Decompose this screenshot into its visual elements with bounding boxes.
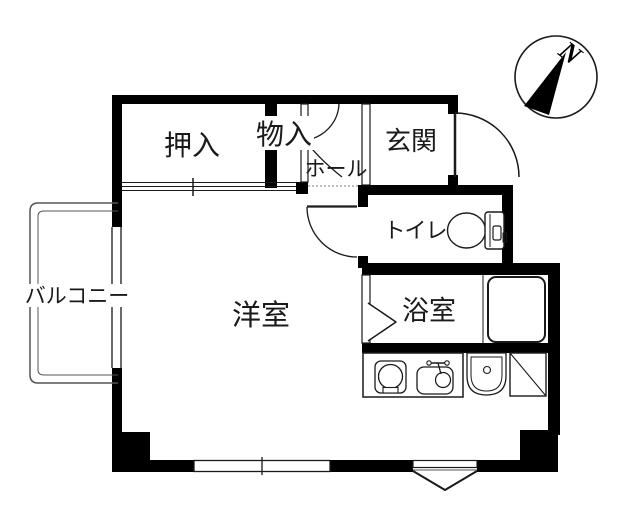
room-labels: 押入 物入 ホール 玄関 トイレ 洋室 浴室 バルコニー: [24, 116, 456, 332]
label-monoire: 物入: [256, 119, 312, 150]
stove-icon: [375, 361, 406, 393]
entry-step-wall: [358, 185, 513, 195]
refrigerator-space-icon: [510, 353, 546, 396]
left-wall-upper: [112, 95, 122, 228]
label-oshiire: 押入: [164, 130, 220, 161]
label-western-room: 洋室: [232, 299, 290, 332]
entry-right-wall-upper: [448, 95, 458, 114]
bathroom-bottom-wall: [362, 343, 558, 353]
toilet-left-wall-lower: [358, 256, 368, 268]
floorplan-drawing: N 押入 物入 ホール 玄関 トイレ 洋室 浴室 バルコニー: [0, 0, 640, 515]
toilet-left-wall-upper: [358, 195, 368, 207]
bathroom-top-wall: [362, 263, 560, 275]
label-bathroom: 浴室: [402, 296, 456, 326]
entry-door-arc: [455, 113, 519, 177]
bay-window-vee: [413, 471, 477, 490]
partition-stub: [296, 182, 308, 194]
top-wall: [112, 95, 458, 104]
washbasin-icon: [467, 353, 506, 395]
corner-block-bottom-right: [520, 430, 558, 472]
stove-tray: [383, 388, 398, 394]
floorplan-canvas: N 押入 物入 ホール 玄関 トイレ 洋室 浴室 バルコニー: [0, 0, 640, 515]
faucet-knob-right: [445, 361, 449, 365]
label-toilet: トイレ: [383, 218, 446, 243]
compass: N: [515, 34, 597, 118]
label-hall: ホール: [305, 158, 368, 181]
bathroom-folding-door: [368, 303, 396, 341]
label-genkan: 玄関: [385, 126, 437, 156]
toilet-icon: [448, 212, 507, 249]
bottom-wall-center: [330, 460, 413, 472]
bathtub-icon: [488, 277, 545, 342]
bottom-wall-left: [112, 460, 194, 472]
toilet-bowl: [448, 213, 486, 248]
faucet-knob-left: [427, 361, 431, 365]
label-balcony: バルコニー: [25, 285, 130, 308]
toilet-door-arc: [307, 207, 357, 257]
bay-window: [413, 461, 477, 468]
kitchen-icons: [363, 353, 546, 397]
